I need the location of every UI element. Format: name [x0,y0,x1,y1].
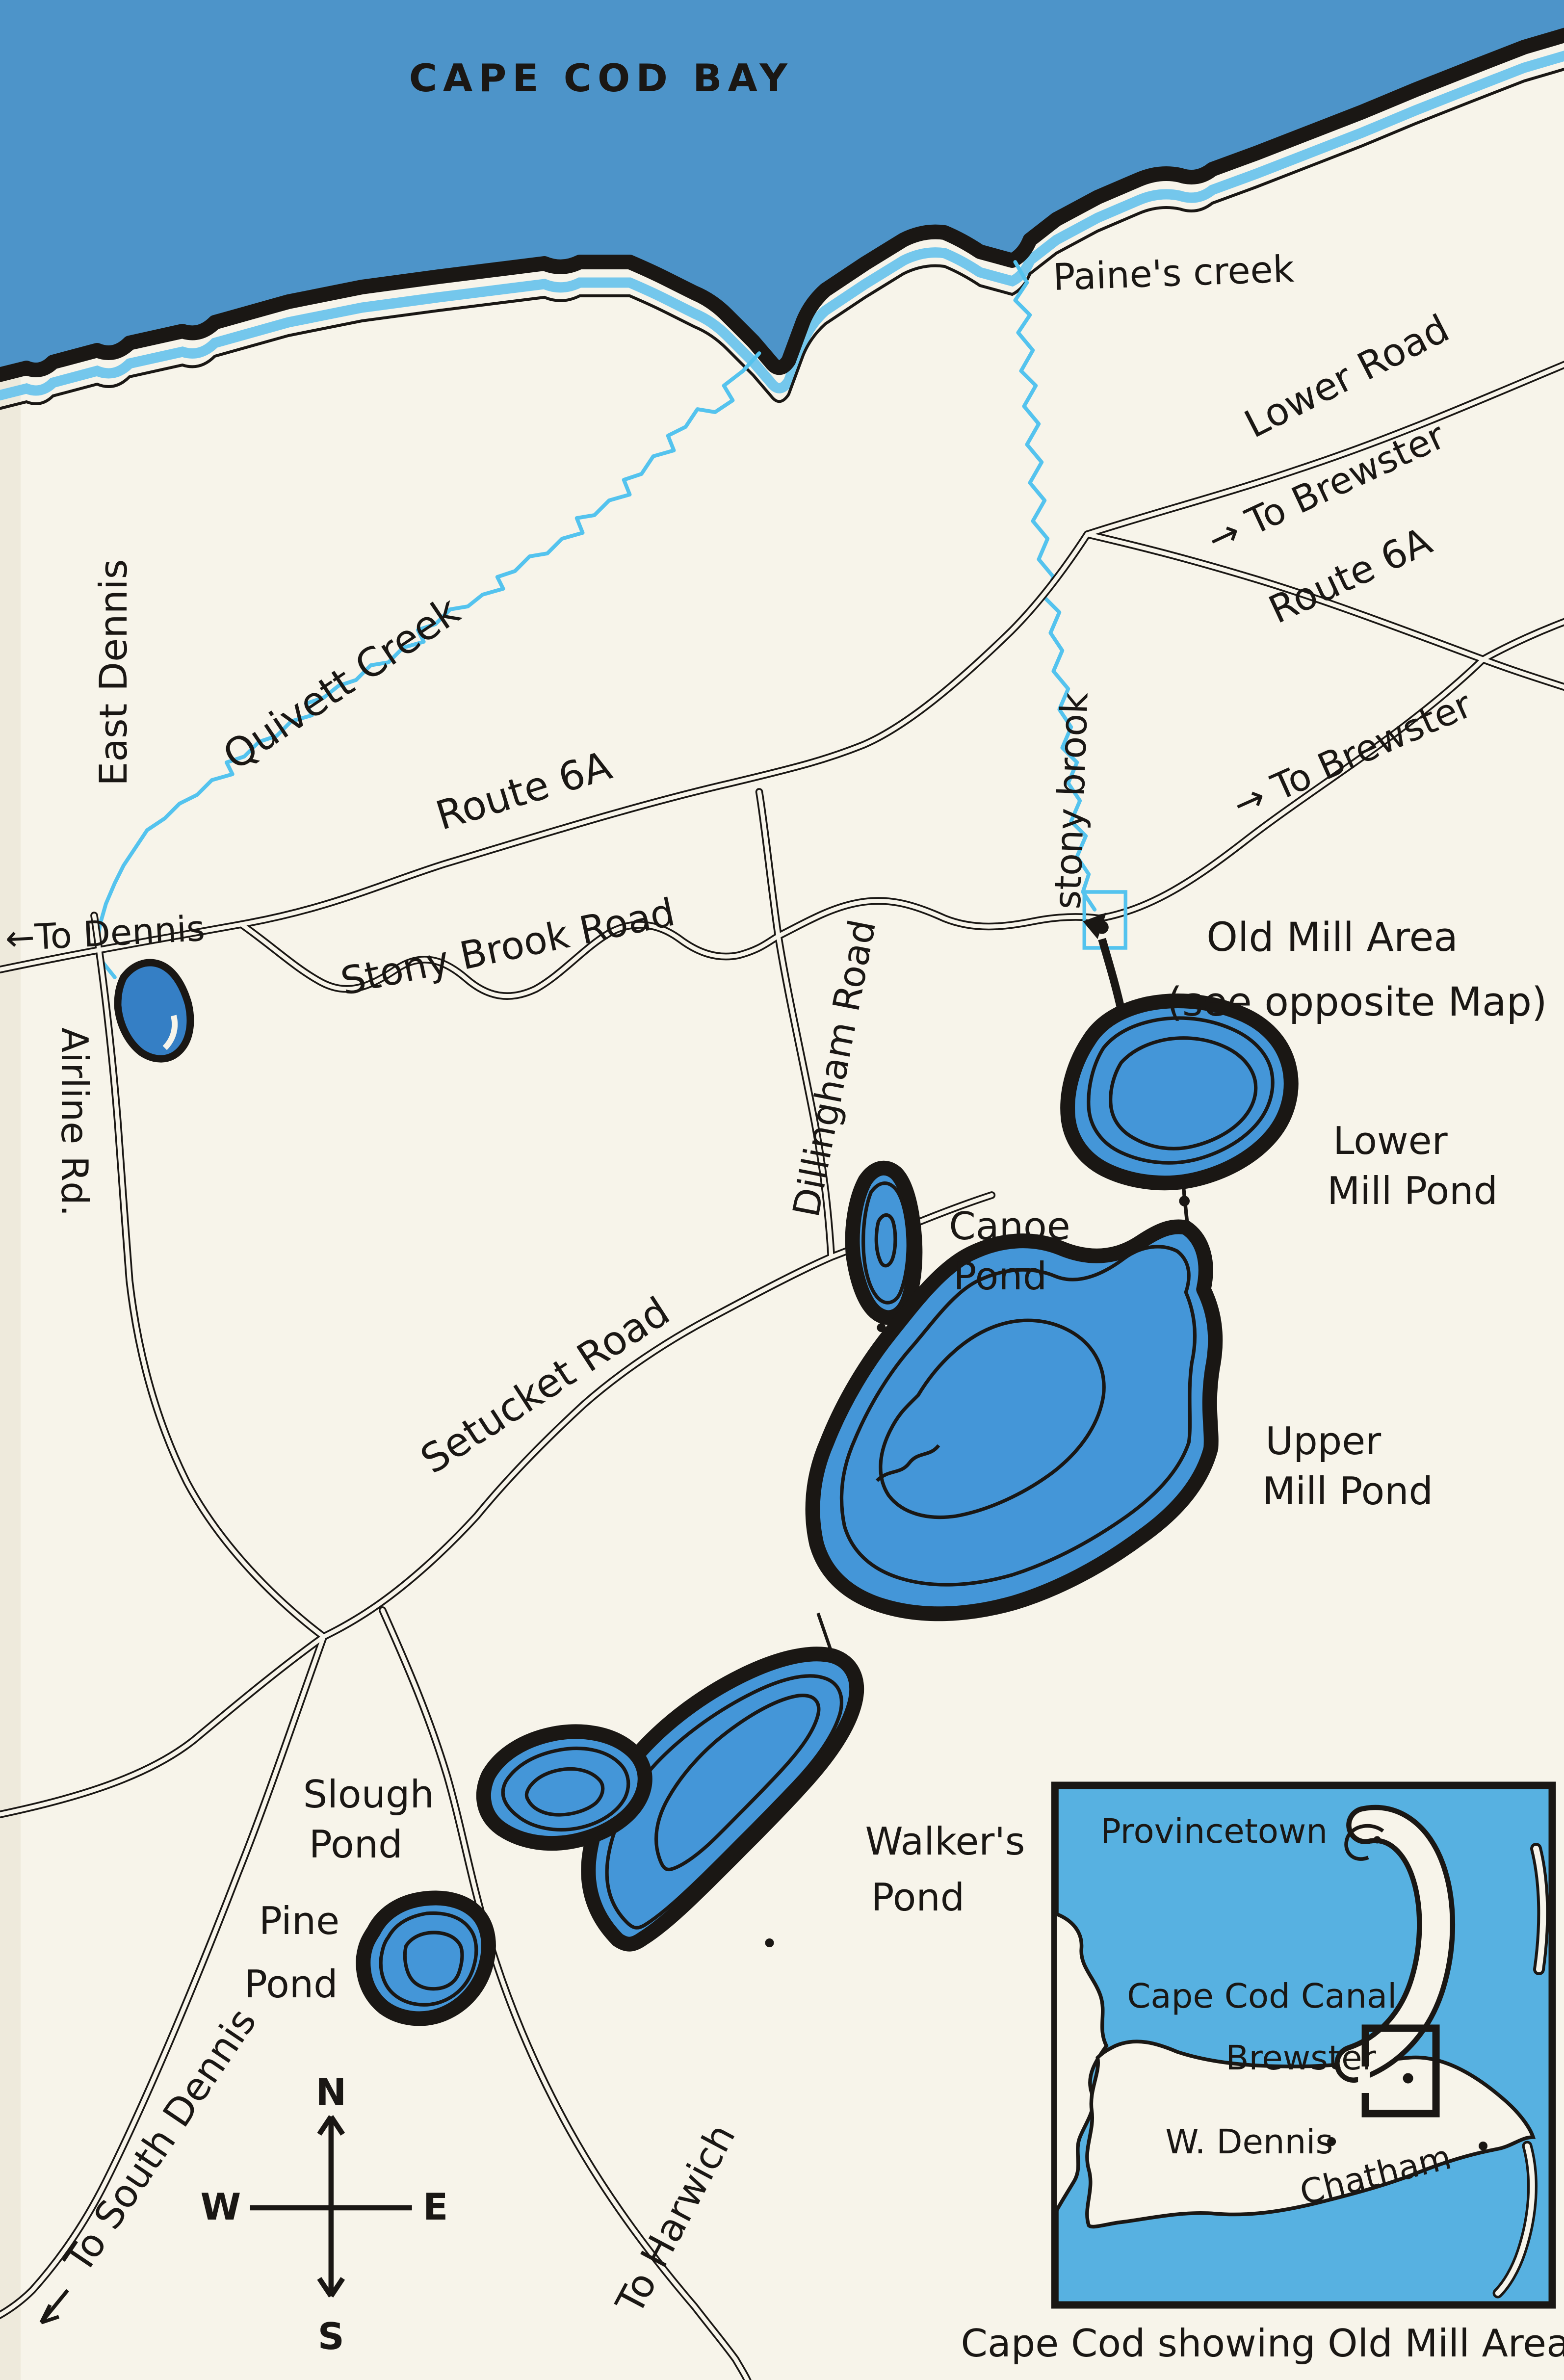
compass-n: N [315,2070,346,2114]
walkers-pond-label: Walker's [865,1820,1025,1864]
inset-provincetown-label: Provincetown [1100,1812,1328,1851]
lower-mill-pond-label-2: Mill Pond [1327,1169,1498,1213]
inset-canal-label: Cape Cod Canal [1127,1977,1397,2016]
old-mill-dot [1095,921,1109,934]
pond-outline [1068,1001,1291,1183]
pine-pond-label-2: Pond [244,1962,338,2007]
stony-brook-label: stony brook [1045,691,1096,910]
canoe-pond-label: Canoe [949,1204,1070,1249]
inset-w-dennis-label: W. Dennis [1165,2122,1333,2162]
inset-brewster-label: Brewster [1225,2039,1376,2078]
canoe-pond-label-2: Pond [953,1255,1047,1299]
pond-outline [118,963,190,1059]
quivett-creek-stream [97,353,759,977]
old-mill-area-label: Old Mill Area [1206,915,1458,961]
compass-s: S [318,2315,344,2358]
east-dennis-label: East Dennis [92,559,136,786]
old-mill-area-note: (see opposite Map) [1167,979,1547,1025]
pine-pond [363,1898,489,2019]
brewster-dot [1403,2073,1413,2084]
route-6a-west-label: Route 6A [431,743,617,839]
setucket-road-label: Setucket Road [413,1288,678,1483]
compass-w: W [201,2185,241,2228]
slough-pond-label: Slough [303,1773,434,1817]
paines-creek-label: Paine's creek [1052,247,1295,299]
inset-caption: Cape Cod showing Old Mill Area [961,2322,1564,2366]
stony-brook-road-label: Stony Brook Road [337,890,678,1004]
upper-mill-pond-label: Upper [1265,1419,1382,1464]
south-dennis-arrow-icon [41,2290,68,2323]
route-6a-east-label: Route 6A [1262,519,1438,632]
map-title: CAPE COD BAY [409,56,793,101]
lower-mill-pond-label: Lower [1333,1119,1448,1163]
small-dot [765,1938,774,1947]
chatham-dot [1479,2142,1487,2150]
to-dennis-label: ←To Dennis [4,908,206,959]
pine-pond-label: Pine [259,1899,339,1943]
to-south-dennis-label: To South Dennis [56,2001,265,2281]
quivett-pond [118,963,190,1059]
airline-rd-label: Airline Rd. [53,1027,96,1217]
compass-e: E [423,2185,448,2228]
compass-rose [250,2117,412,2296]
provincetown-dot [1374,1836,1381,1844]
cape-cod-map: N S W E Provincetown Cape Cod Canal Brew… [0,0,1564,2380]
to-brewster-mid-label: → To Brewster [1226,682,1479,826]
slough-pond [484,1731,645,1843]
walkers-pond-label-2: Pond [871,1876,964,1920]
outlet-dot [1179,1196,1190,1206]
upper-mill-pond-label-2: Mill Pond [1262,1469,1433,1514]
slough-pond-label-2: Pond [309,1823,403,1867]
inset-map: Provincetown Cape Cod Canal Brewster W. … [1055,1785,1552,2305]
quivett-creek-label: Quivett Creek [215,588,468,780]
map-page: N S W E Provincetown Cape Cod Canal Brew… [0,0,1564,2380]
